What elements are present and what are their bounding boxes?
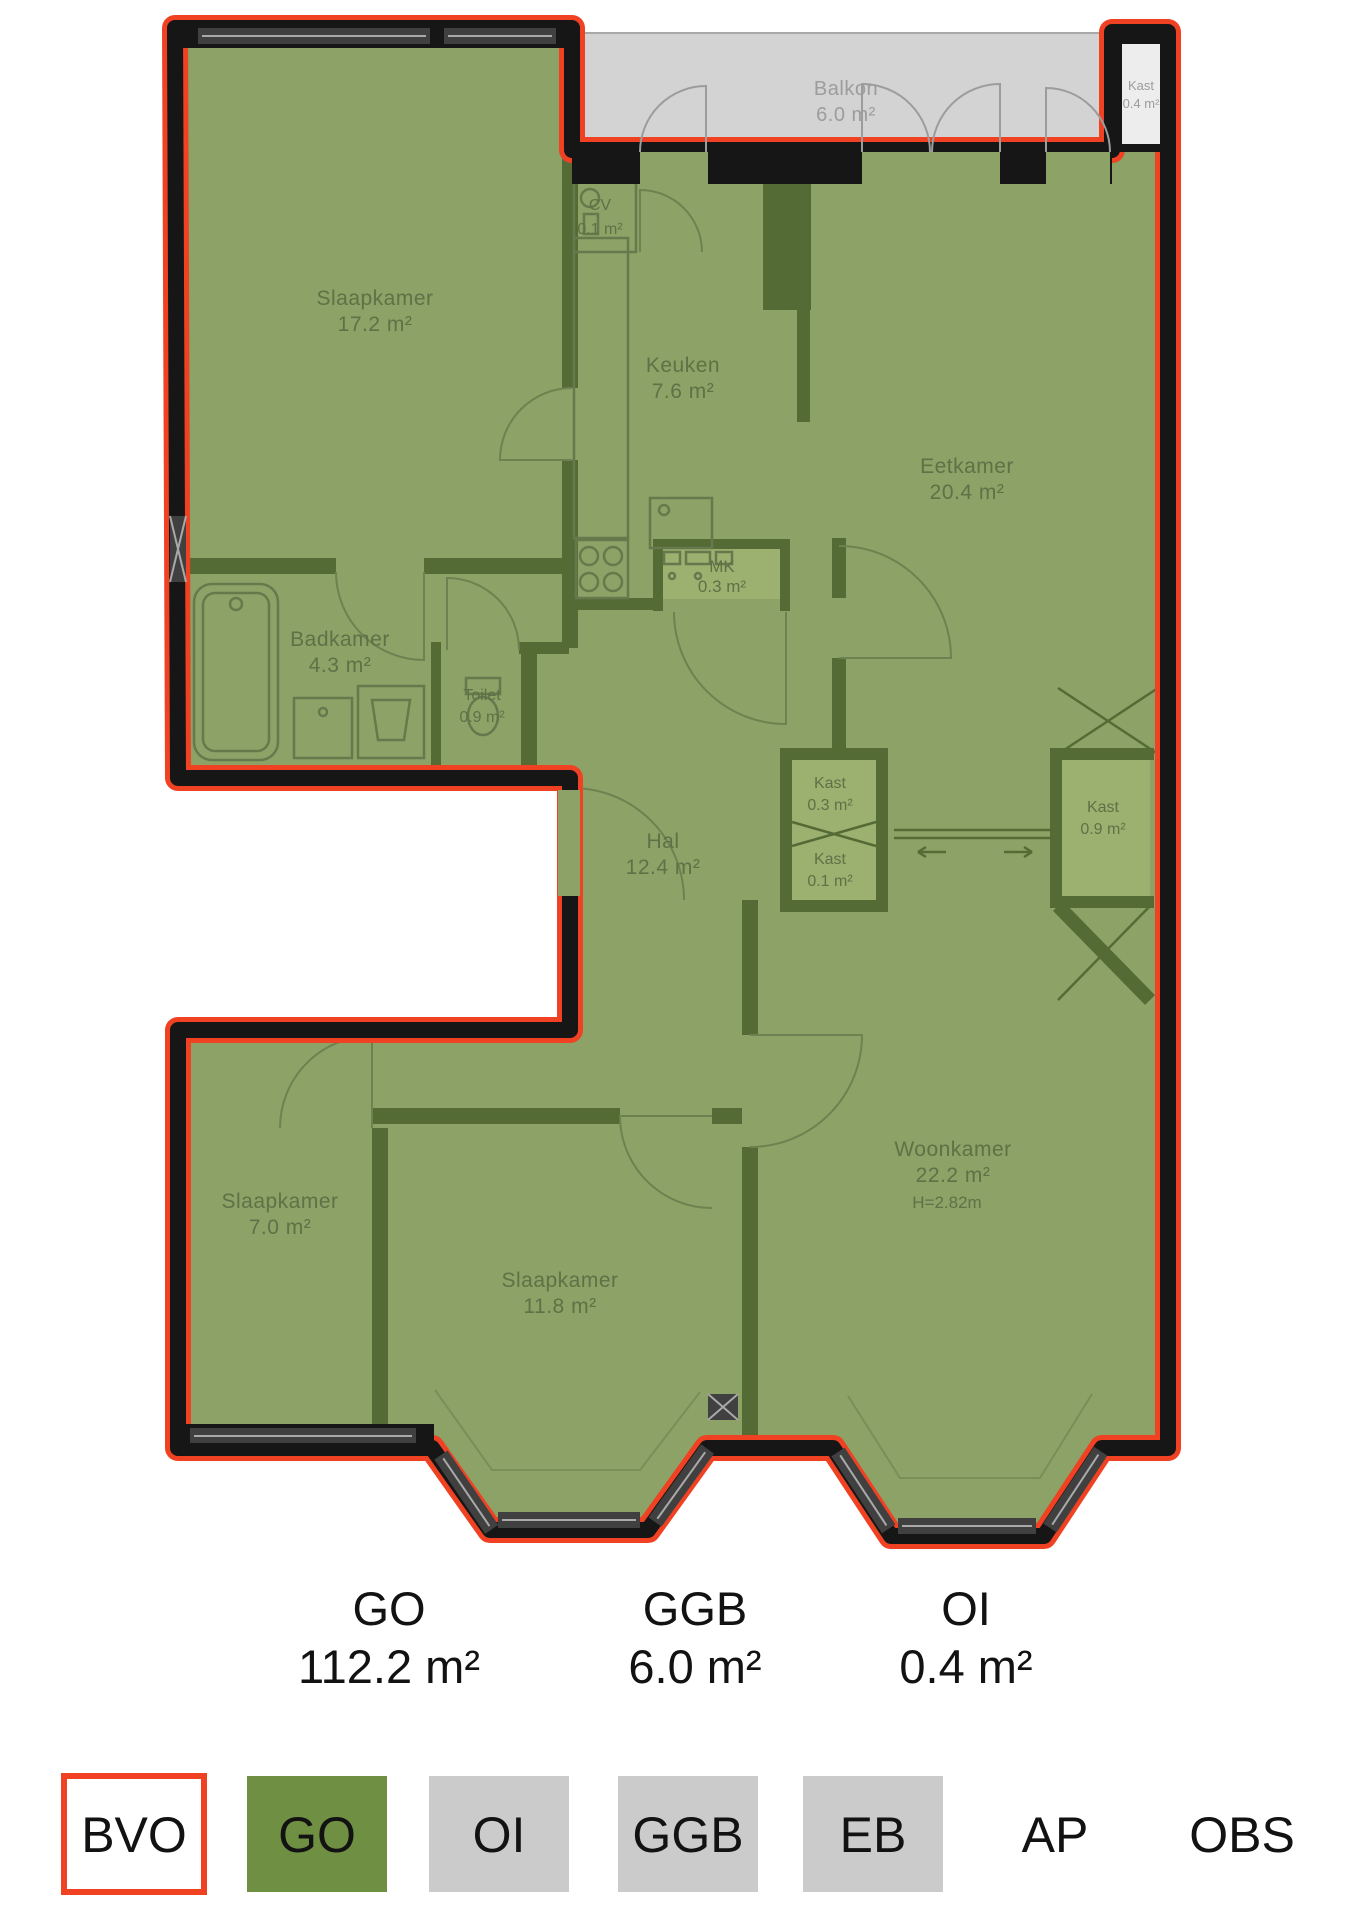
total-oi-value: 0.4 m² xyxy=(899,1640,1032,1693)
room-area-mk: 0.3 m² xyxy=(698,577,747,596)
room-name-eetkamer: Eetkamer xyxy=(920,455,1014,478)
room-name-balkon: Balkon xyxy=(814,78,878,100)
legend-label-obs: OBS xyxy=(1189,1807,1295,1863)
room-area-kast-balkon: 0.4 m² xyxy=(1123,96,1161,111)
room-area-badkamer: 4.3 m² xyxy=(309,654,372,677)
room-name-mk: MK xyxy=(709,557,735,576)
room-name-cv: CV xyxy=(589,197,612,214)
room-area-cv: 0.1 m² xyxy=(577,221,623,238)
room-area-slaapkamer3: 11.8 m² xyxy=(523,1295,596,1318)
balcony-closet xyxy=(1112,34,1170,152)
legend: BVO GO OI GGB EB AP OBS xyxy=(64,1776,1295,1892)
legend-label-ggb: GGB xyxy=(632,1807,743,1863)
room-area-kast-hal-boven: 0.3 m² xyxy=(807,797,853,814)
room-name-kast-balkon: Kast xyxy=(1128,78,1154,93)
room-name-kast-woonkamer: Kast xyxy=(1087,799,1120,816)
room-area-hal: 12.4 m² xyxy=(626,856,701,879)
room-area-keuken: 7.6 m² xyxy=(652,380,715,403)
room-area-kast-hal-onder: 0.1 m² xyxy=(807,873,853,890)
legend-label-oi: OI xyxy=(473,1807,526,1863)
room-name-slaapkamer1: Slaapkamer xyxy=(316,287,433,310)
room-name-toilet: Toilet xyxy=(463,687,501,704)
total-ggb-value: 6.0 m² xyxy=(628,1640,761,1693)
room-area-eetkamer: 20.4 m² xyxy=(930,481,1005,504)
total-go-value: 112.2 m² xyxy=(298,1640,480,1693)
room-area-toilet: 0.9 m² xyxy=(459,709,505,726)
room-name-keuken: Keuken xyxy=(646,354,720,377)
room-area-slaapkamer2: 7.0 m² xyxy=(249,1216,312,1239)
room-area-balkon: 6.0 m² xyxy=(816,104,876,126)
legend-label-eb: EB xyxy=(840,1807,907,1863)
room-name-kast-hal-onder: Kast xyxy=(814,851,847,868)
room-area-woonkamer: 22.2 m² xyxy=(916,1164,991,1187)
area-totals: GO 112.2 m² GGB 6.0 m² OI 0.4 m² xyxy=(298,1582,1033,1693)
total-go-code: GO xyxy=(352,1582,425,1635)
room-name-badkamer: Badkamer xyxy=(290,628,390,651)
room-height-woonkamer: H=2.82m xyxy=(912,1193,981,1212)
room-name-hal: Hal xyxy=(646,830,679,853)
legend-label-ap: AP xyxy=(1022,1807,1089,1863)
room-name-woonkamer: Woonkamer xyxy=(894,1138,1011,1161)
floorplan-page: Slaapkamer 17.2 m² CV 0.1 m² Keuken 7.6 … xyxy=(0,0,1358,1920)
room-name-slaapkamer3: Slaapkamer xyxy=(501,1269,618,1292)
total-ggb-code: GGB xyxy=(643,1582,747,1635)
legend-label-bvo: BVO xyxy=(81,1807,187,1863)
floor-plan-svg: Slaapkamer 17.2 m² CV 0.1 m² Keuken 7.6 … xyxy=(0,0,1358,1920)
room-name-kast-hal-boven: Kast xyxy=(814,775,847,792)
room-area-kast-woonkamer: 0.9 m² xyxy=(1080,821,1126,838)
room-area-slaapkamer1: 17.2 m² xyxy=(338,313,413,336)
legend-label-go: GO xyxy=(278,1807,356,1863)
total-oi-code: OI xyxy=(941,1582,991,1635)
room-name-slaapkamer2: Slaapkamer xyxy=(221,1190,338,1213)
